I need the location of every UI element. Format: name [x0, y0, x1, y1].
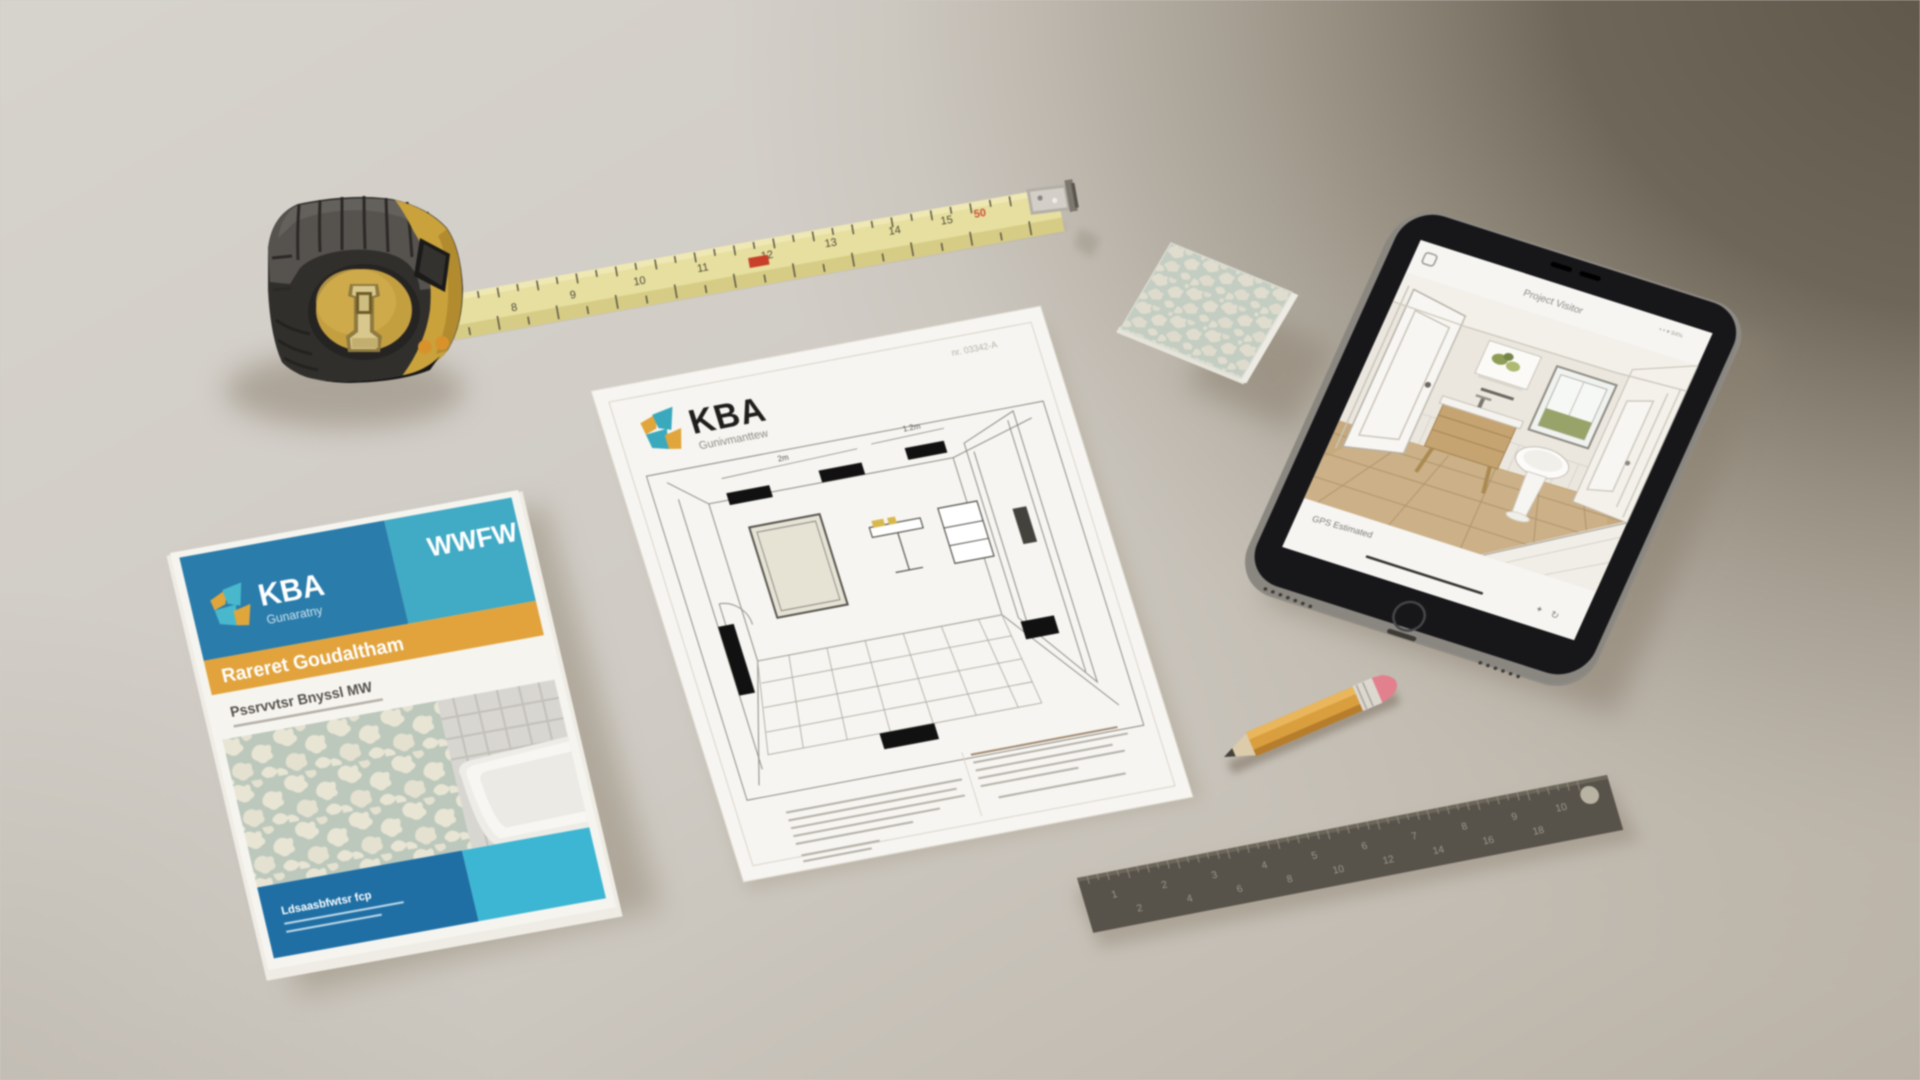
svg-text:10: 10	[633, 275, 647, 289]
svg-text:14: 14	[888, 224, 902, 238]
svg-text:15: 15	[940, 214, 954, 228]
svg-text:13: 13	[824, 236, 838, 250]
svg-text:11: 11	[696, 261, 709, 275]
svg-text:50: 50	[973, 207, 987, 221]
